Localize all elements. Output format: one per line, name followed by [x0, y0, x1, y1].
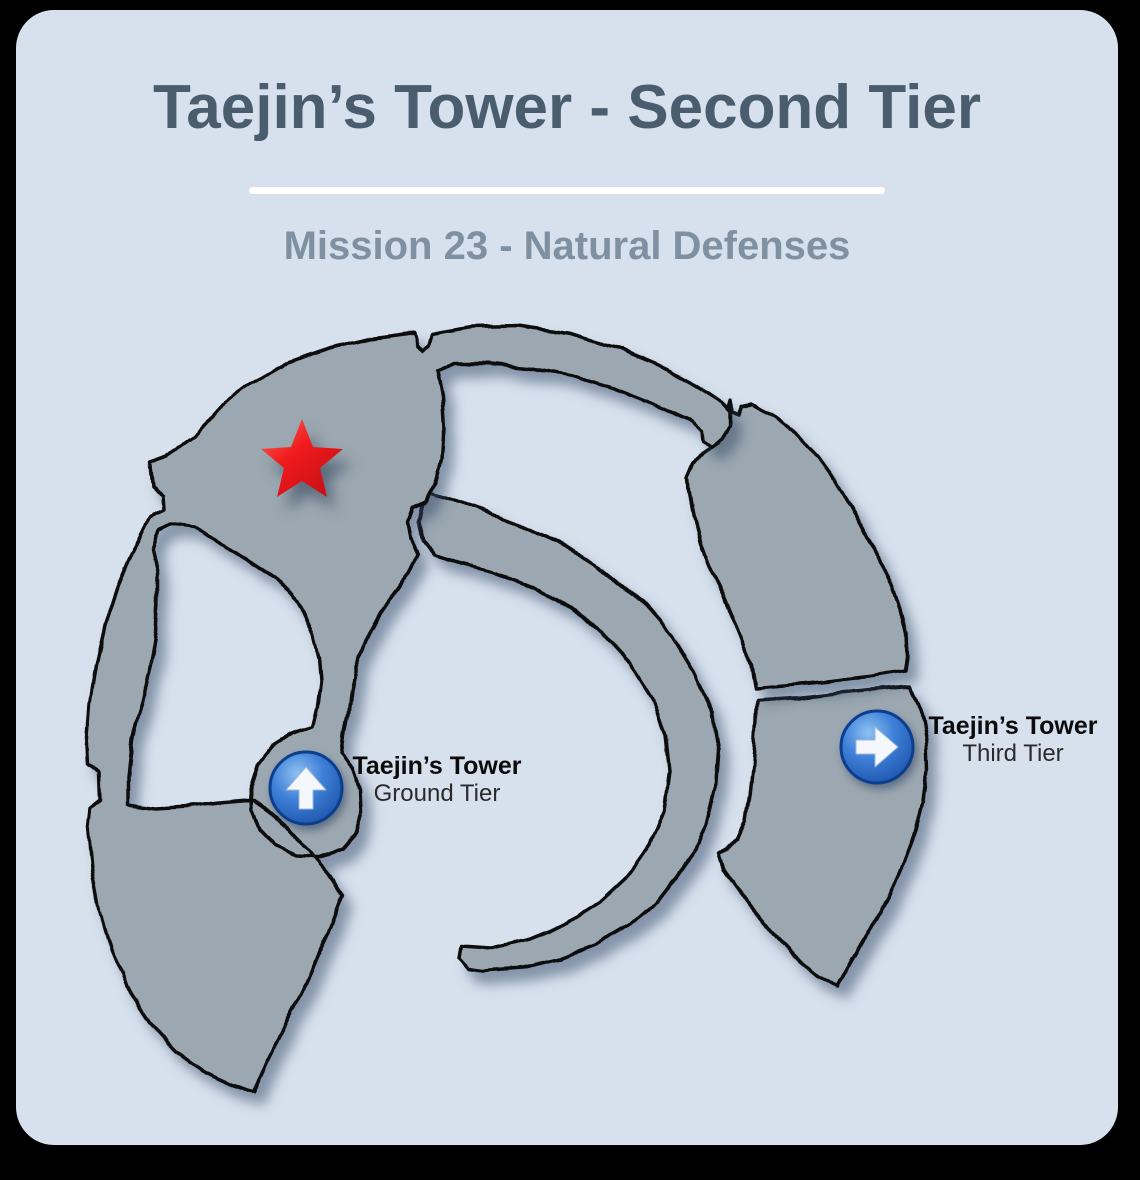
mission-subtitle: Mission 23 - Natural Defenses [16, 224, 1118, 269]
marker-location-name: Taejin’s Tower [928, 713, 1097, 740]
header: Taejin’s Tower - Second Tier Mission 23 … [16, 10, 1118, 269]
marker-location-name: Taejin’s Tower [352, 753, 521, 780]
marker-tier-name: Third Tier [928, 740, 1097, 767]
page-title: Taejin’s Tower - Second Tier [16, 72, 1118, 143]
marker-label-ground-tier: Taejin’s Tower Ground Tier [352, 753, 521, 807]
guide-card: Taejin’s Tower - Second Tier Mission 23 … [16, 10, 1118, 1145]
marker-label-third-tier: Taejin’s Tower Third Tier [928, 713, 1097, 767]
marker-tier-name: Ground Tier [352, 780, 521, 807]
divider [249, 187, 885, 194]
screenshot-root: { "header": { "title": "Taejin’s Tower -… [0, 0, 1140, 1180]
